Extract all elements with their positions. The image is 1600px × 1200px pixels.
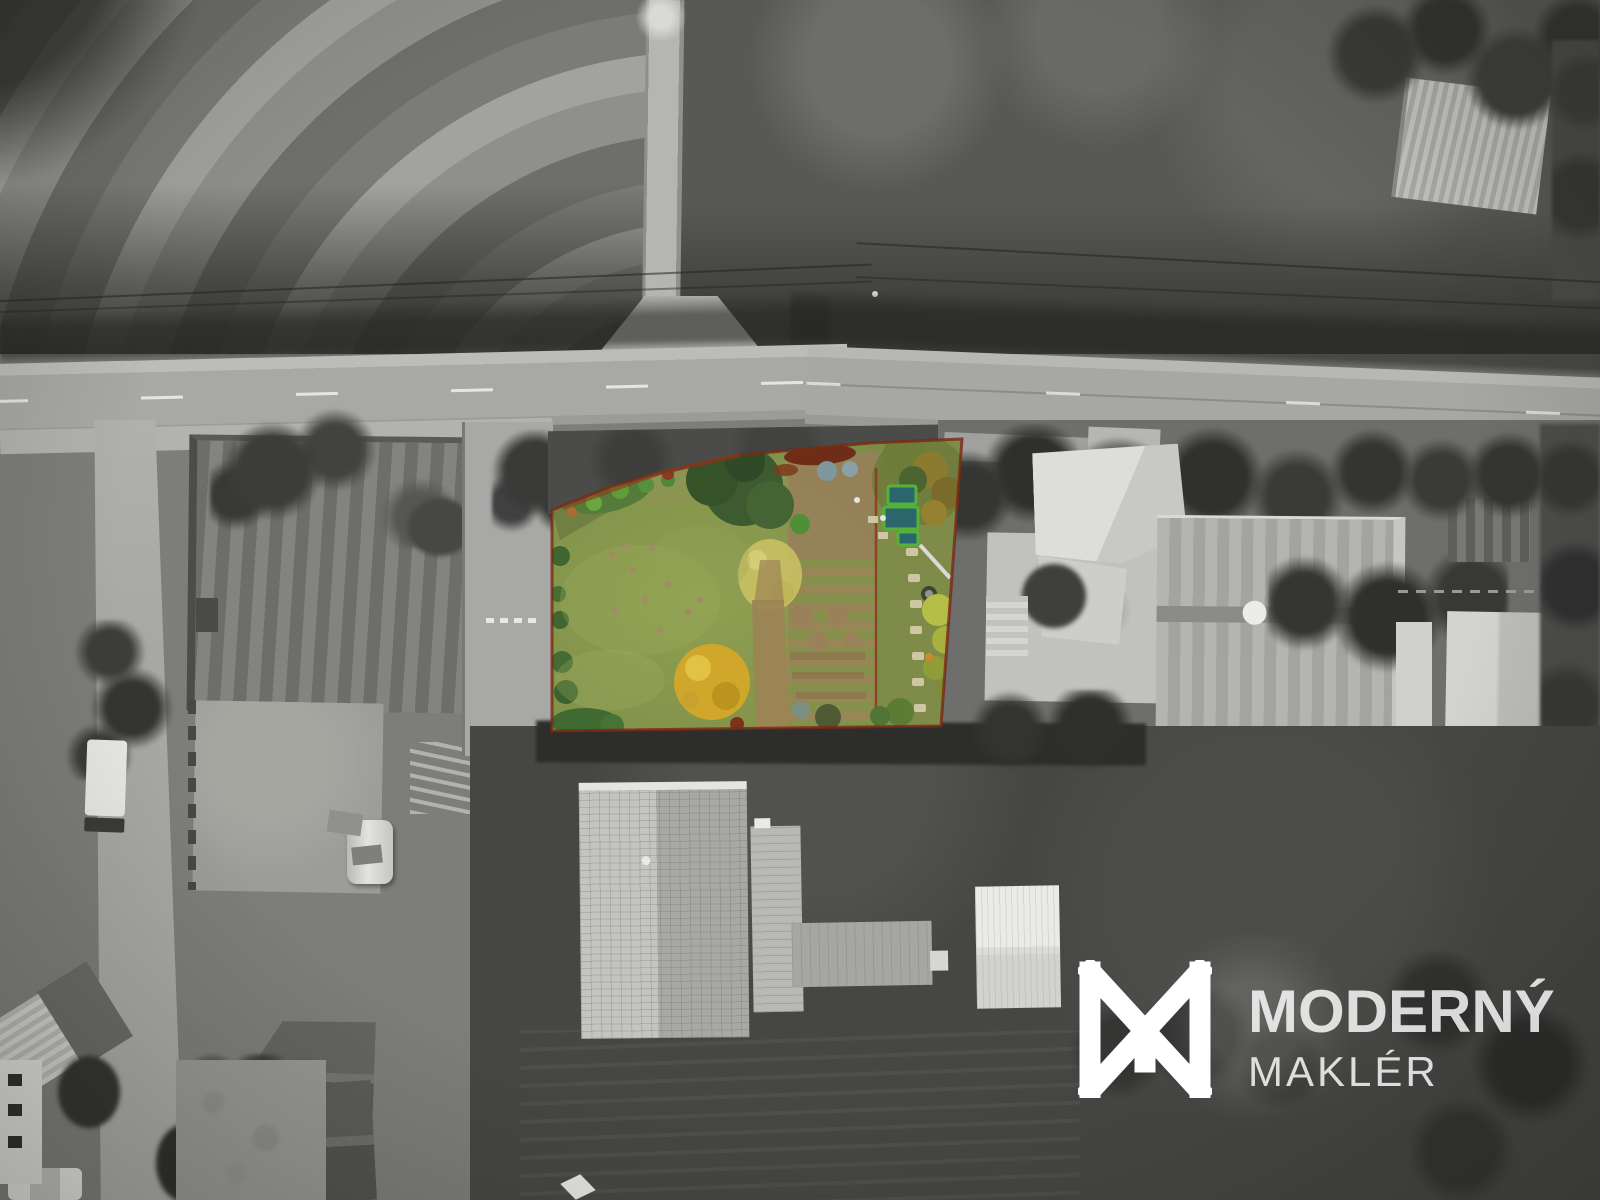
brand-name-block: MODERNÝ MAKLÉR	[1248, 982, 1555, 1093]
brand-subtitle: MAKLÉR	[1248, 1051, 1555, 1093]
watermark: MODERNÝ MAKLÉR	[1078, 960, 1555, 1098]
brand-name: MODERNÝ	[1248, 982, 1555, 1042]
aerial-photo: MODERNÝ MAKLÉR	[0, 0, 1600, 1200]
moderny-makler-logo-icon	[1078, 960, 1212, 1098]
